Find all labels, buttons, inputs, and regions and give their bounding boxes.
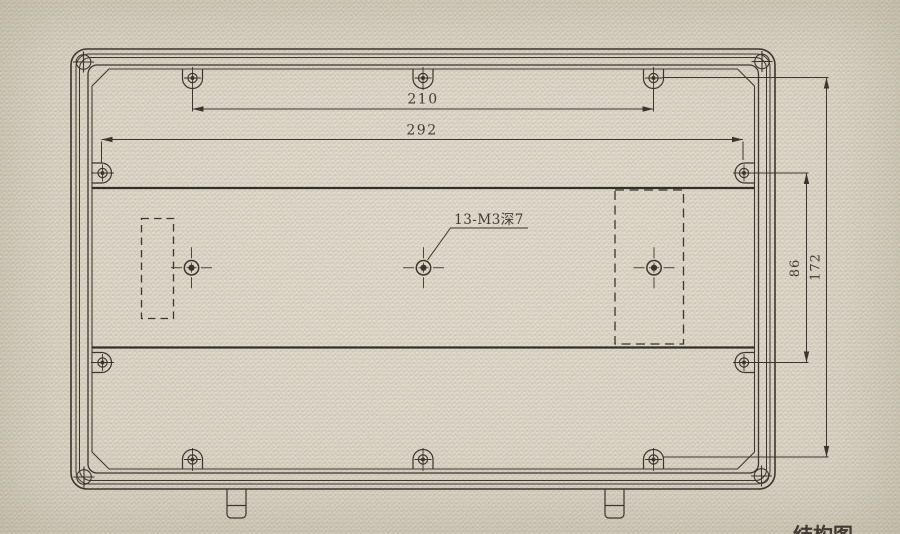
dimension-value: 210 bbox=[407, 92, 438, 108]
boss-screw-dot bbox=[652, 458, 656, 462]
leader-line bbox=[428, 228, 529, 260]
foot-outline bbox=[227, 490, 246, 519]
arrowhead bbox=[824, 446, 829, 457]
bottom-right-partial-label: 结构图 bbox=[793, 523, 853, 534]
screw-boss-left-lower bbox=[91, 353, 114, 373]
dimension-86: 86 bbox=[753, 173, 810, 363]
arrowhead bbox=[643, 106, 654, 111]
boss-screw-dot bbox=[742, 361, 746, 365]
arrowhead bbox=[102, 137, 113, 142]
boss-screw-dot bbox=[652, 76, 656, 80]
boss-screw-dot bbox=[191, 76, 195, 80]
dimension-292: 292 bbox=[102, 123, 744, 164]
boss-screw-dot bbox=[421, 458, 425, 462]
boss-screw-dot bbox=[742, 171, 746, 175]
mounting-hole-right bbox=[634, 247, 675, 288]
mounting-hole-center bbox=[403, 247, 444, 288]
dimension-value: 172 bbox=[809, 253, 824, 281]
dimension-210: 210 bbox=[193, 89, 654, 112]
enclosure-base-technical-drawing: 210 292 86 172 bbox=[0, 0, 900, 534]
thread-callout: 13-M3深7 bbox=[428, 212, 529, 260]
boss-screw-dot bbox=[421, 76, 425, 80]
boss-screw-dot bbox=[191, 458, 195, 462]
mounting-foot-right bbox=[605, 490, 624, 519]
arrowhead bbox=[193, 106, 204, 111]
screw-boss-right-lower bbox=[733, 353, 756, 373]
corner-screw-bottom-right bbox=[751, 466, 772, 487]
screw-boss-left-upper bbox=[91, 163, 114, 183]
screw-boss-top-middle bbox=[413, 67, 433, 90]
screw-boss-top-left bbox=[183, 67, 203, 90]
hidden-slot-outline-right bbox=[615, 190, 684, 344]
arrowhead bbox=[824, 78, 829, 89]
arrowhead bbox=[732, 137, 743, 142]
dimension-value: 292 bbox=[406, 123, 437, 139]
scanned-drawing-page: 210 292 86 172 bbox=[0, 0, 900, 534]
screw-boss-bottom-right bbox=[644, 448, 664, 471]
screw-boss-bottom-middle bbox=[413, 448, 433, 471]
boss-screw-dot bbox=[101, 171, 105, 175]
dimension-value: 86 bbox=[788, 259, 803, 278]
arrowhead bbox=[804, 173, 809, 184]
mounting-hole-left bbox=[171, 247, 212, 288]
screw-boss-right-upper bbox=[733, 163, 756, 183]
boss-screw-dot bbox=[101, 361, 105, 365]
thread-callout-text: 13-M3深7 bbox=[454, 212, 524, 228]
screw-boss-bottom-left bbox=[183, 448, 203, 471]
foot-outline bbox=[605, 490, 624, 519]
screw-boss-top-right bbox=[644, 67, 664, 90]
hidden-slot-outline-left bbox=[142, 219, 174, 319]
mounting-foot-left bbox=[227, 490, 246, 519]
arrowhead bbox=[804, 352, 809, 363]
dimension-172: 172 bbox=[662, 78, 829, 458]
